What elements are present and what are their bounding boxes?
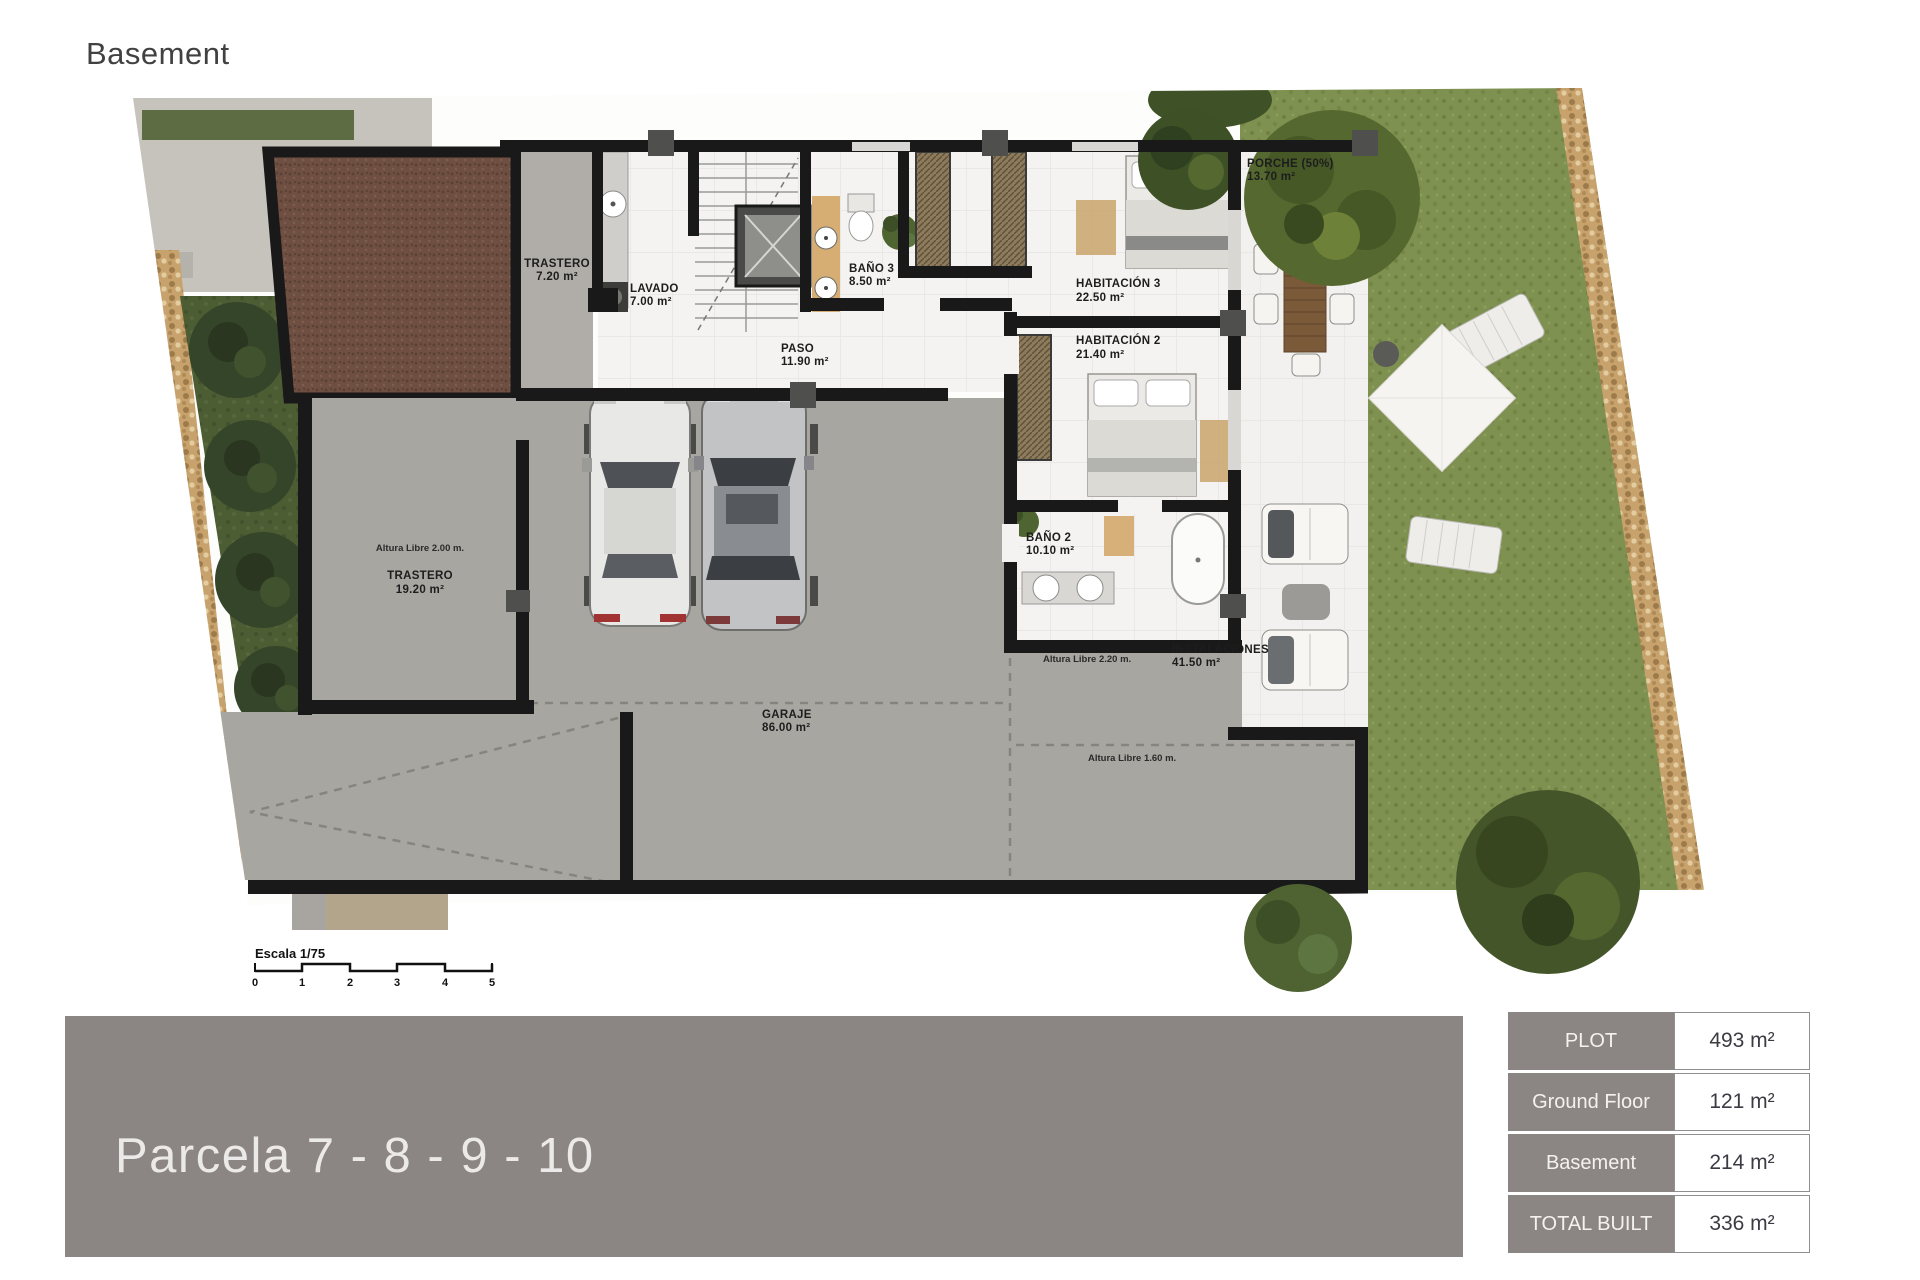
svg-text:4: 4 — [442, 977, 449, 989]
note-altura-160: Altura Libre 1.60 m. — [1088, 753, 1176, 764]
summary-row-value: 493 m² — [1674, 1012, 1810, 1070]
floor-plan-page: Basement — [0, 0, 1920, 1280]
label-habitacion2: HABITACIÓN 2 — [1076, 334, 1161, 347]
ramp-apron — [292, 894, 448, 930]
toilet-icon — [849, 211, 873, 241]
label-garaje: GARAJE — [762, 709, 812, 721]
label-bano3: BAÑO 3 — [849, 262, 894, 275]
svg-text:7.00 m²: 7.00 m² — [630, 296, 672, 308]
svg-text:5: 5 — [489, 977, 495, 989]
label-trastero-small: TRASTERO — [524, 258, 590, 270]
parcela-title: Parcela 7 - 8 - 9 - 10 — [115, 1128, 595, 1184]
scale-label: Escala 1/75 — [255, 946, 325, 961]
label-habitacion3: HABITACIÓN 3 — [1076, 277, 1161, 290]
car-2 — [694, 392, 818, 630]
svg-text:1: 1 — [299, 977, 305, 989]
svg-text:10.10 m²: 10.10 m² — [1026, 545, 1074, 557]
svg-text:7.20 m²: 7.20 m² — [536, 271, 578, 283]
svg-text:86.00 m²: 86.00 m² — [762, 722, 810, 734]
floor-plan-drawing: TRASTERO 7.20 m² LAVADO 7.00 m² BAÑO 3 8… — [0, 0, 1920, 1010]
svg-text:22.50 m²: 22.50 m² — [1076, 292, 1124, 304]
parcela-banner: Parcela 7 - 8 - 9 - 10 — [65, 1016, 1463, 1257]
svg-text:21.40 m²: 21.40 m² — [1076, 349, 1124, 361]
note-altura-220: Altura Libre 2.20 m. — [1043, 654, 1131, 665]
svg-text:0: 0 — [252, 977, 258, 989]
svg-text:41.50 m²: 41.50 m² — [1172, 657, 1220, 669]
svg-text:13.70 m²: 13.70 m² — [1247, 171, 1295, 183]
svg-text:3: 3 — [394, 977, 400, 989]
door-leaf — [588, 288, 618, 312]
summary-row-value: 336 m² — [1674, 1195, 1810, 1253]
svg-text:8.50 m²: 8.50 m² — [849, 276, 891, 288]
summary-row-value: 214 m² — [1674, 1134, 1810, 1192]
hedge — [142, 110, 354, 140]
note-altura-200: Altura Libre 2.00 m. — [376, 543, 464, 554]
svg-text:2: 2 — [347, 977, 353, 989]
summary-row-value: 121 m² — [1674, 1073, 1810, 1131]
label-trastero-big: TRASTERO — [387, 570, 453, 582]
elevator-shaft — [736, 206, 810, 286]
label-instalaciones: INSTALACIONES — [1172, 644, 1269, 656]
svg-text:11.90 m²: 11.90 m² — [781, 356, 829, 368]
summary-row-label: TOTAL BUILT — [1508, 1195, 1674, 1253]
summary-row-label: Basement — [1508, 1134, 1674, 1192]
summary-row-label: Ground Floor — [1508, 1073, 1674, 1131]
summary-row-label: PLOT — [1508, 1012, 1674, 1070]
svg-text:19.20 m²: 19.20 m² — [396, 584, 444, 596]
scale-bar: Escala 1/75 0 1 2 3 4 5 — [252, 946, 495, 989]
coffee-table — [1282, 584, 1330, 620]
label-lavado: LAVADO — [630, 283, 679, 295]
label-paso: PASO — [781, 343, 814, 355]
patio-terrace — [268, 152, 516, 398]
label-porche: PORCHE (50%) — [1247, 158, 1334, 170]
label-bano2: BAÑO 2 — [1026, 531, 1071, 544]
summary-table: PLOT 493 m² Ground Floor 121 m² Basement… — [1508, 1012, 1810, 1253]
car-1 — [582, 394, 698, 626]
